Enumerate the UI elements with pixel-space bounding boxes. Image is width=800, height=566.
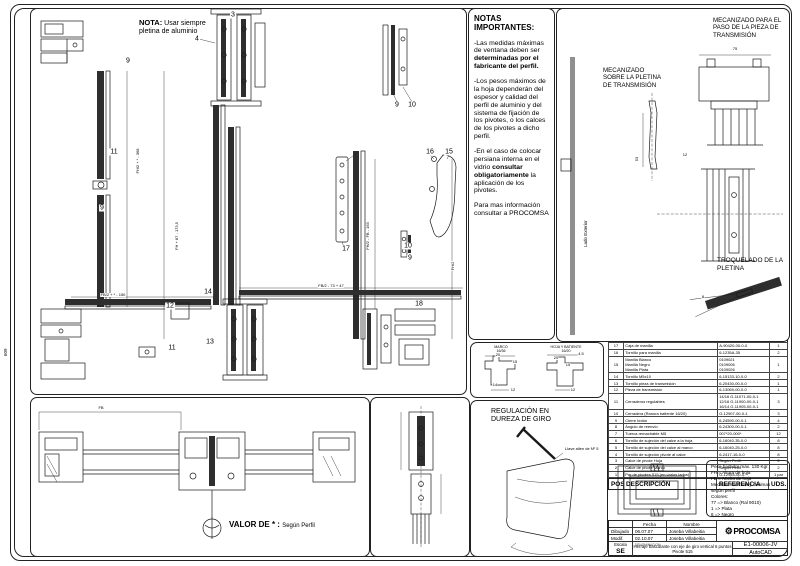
software-label: AutoCAD [733, 549, 788, 556]
parts-table-row: 4 Tornillo de sujeción pivote al calce 6… [609, 451, 788, 458]
punched-strip [690, 271, 783, 317]
sheet-edge-label: 609 [3, 348, 8, 356]
window-schematic-icon [614, 462, 700, 518]
nombre-header: Nombre [667, 521, 717, 528]
modif-label: Modif. [609, 535, 633, 542]
vertical-detail-drawing [371, 398, 469, 556]
parts-table-row: 16 Tornillo para manilla 6-1235A-35 2 [609, 349, 788, 356]
rotation-adjustment-panel: REGULACIÓN EN DUREZA DE GIRO Llave allen… [470, 400, 608, 557]
parts-table-row: 6 Tornillo de sujeción del calce a la ho… [609, 437, 788, 444]
parts-table-row: 12 Pieza de transmisión 6-13069-00-0-0 1 [609, 386, 788, 393]
parts-table-row: 10 Cerradera (Ranura batiente 16/20) G-1… [609, 410, 788, 417]
fecha-header: Fecha [633, 521, 667, 528]
brand-name: PROCOMSA [733, 526, 780, 536]
top-right-hardware [383, 25, 412, 102]
notes-paragraph-3: -En el caso de colocar persiana interna … [474, 148, 549, 195]
modif-nombre: Joseba Villabeitia [667, 535, 717, 542]
corner-assembly-bottom-left [41, 309, 155, 379]
notes-paragraph-2: -Los pesos máximos de la hoja dependerán… [474, 78, 549, 141]
drawing-subtitle: Pivote 515 [672, 549, 692, 554]
escala-value: SE [616, 548, 625, 556]
procomsa-logo: ⚙ PROCOMSA [725, 526, 781, 536]
main-note-title: NOTA: [139, 18, 162, 27]
dibujado-nombre: Joseba Villabeitia [667, 528, 717, 535]
notes-paragraph-4: Para mas información consultar a PROCOMS… [474, 202, 549, 218]
parts-table-row: 13 Tornillo pieza de transmisión 6-20430… [609, 380, 788, 387]
parts-table-row: 8 Ángulo de reenvío 6-24300-00-0-1 2 [609, 424, 788, 431]
main-assembly-drawing [31, 9, 466, 394]
parts-table-row: 17 Caja de manilla A-90420-00-0-0 1 [609, 343, 788, 350]
hoja-section-label: HOJA Y BATIENTE 16/20 [535, 345, 597, 354]
allen-key-label: Llave allen de Nº 5 [565, 447, 605, 452]
machining-panel: MECANIZADO PARA EL PASO DE LA PIEZA DE T… [556, 8, 790, 342]
dibujado-fecha: 06.07.07 [633, 528, 667, 535]
parts-table-row: 7 Tuerca remachable M5 007*20-000* 12 [609, 430, 788, 437]
notes-paragraph-1: -Las medidas máximas de ventana deben se… [474, 40, 549, 72]
modif-fecha: 02.10.07 [633, 535, 667, 542]
vertical-detail-panel [370, 397, 470, 557]
parts-table-row: 9 Cierre botón 6-24590-00-0-1 4 [609, 417, 788, 424]
parts-table-row: 5 Tornillo de sujeción del calce al marc… [609, 444, 788, 451]
marco-section [485, 356, 515, 390]
parts-table-row: 11 Cerraderos regulables 14/16 G-11071-0… [609, 393, 788, 410]
valor-label: VALOR DE * : Según Perfil [229, 520, 315, 529]
main-assembly-panel: NOTA: Usar siempre pletina de aluminio 9… [30, 8, 467, 395]
center-pivot-assembly [179, 432, 245, 490]
adjustment-title: REGULACIÓN EN DUREZA DE GIRO [491, 408, 551, 425]
parts-table-row: 14 Tornillo M5x10 6-15133-10-0-0 2 [609, 373, 788, 380]
lock-pieces [401, 231, 411, 257]
denominacion-label: DENOMINACION [635, 543, 660, 547]
machining-drawing [557, 9, 789, 341]
left-frame-block [39, 432, 83, 482]
horizontal-section-panel: FB VALOR DE * : Según Perfil [30, 397, 370, 557]
drawing-sheet: 609 [0, 0, 800, 566]
document-reference: E1-00006-JV [733, 542, 788, 549]
horizontal-section-drawing [31, 398, 369, 556]
hoja-section [547, 355, 583, 390]
important-notes-panel: NOTAS IMPORTANTES: -Las medidas máximas … [468, 8, 555, 340]
handle-sketch [507, 459, 574, 539]
gear-icon: ⚙ [725, 527, 733, 536]
drawing-title-cell: DENOMINACION Herraje basculante con eje … [633, 542, 733, 556]
fb-dimension: FB [98, 406, 104, 410]
transmission-detail [657, 169, 783, 261]
bottom-center-hardware [223, 299, 267, 380]
parts-table-body: 17 Caja de manilla A-90420-00-0-0 1 16 T… [609, 343, 788, 478]
notes-title: NOTAS IMPORTANTES: [474, 15, 549, 33]
marco-section-label: MARCO 16/36 [477, 345, 525, 354]
profile-section [699, 55, 771, 145]
groove-sections-panel: MARCO 16/36 HOJA Y BATIENTE 16/20 201514… [470, 342, 604, 398]
pivot-detail [203, 490, 221, 539]
punching-title: TROQUELADO DE LA PLETINA [717, 257, 789, 272]
machining-plate-title: MECANIZADO SOBRE LA PLETINA DE TRANSMISI… [603, 67, 663, 89]
logo-cell: ⚙ PROCOMSA [717, 521, 788, 542]
dibujado-label: Dibujado [609, 528, 633, 535]
parts-table-row: 15 Manilla Blanco Manilla Negro Manilla … [609, 356, 788, 373]
main-note: NOTA: Usar siempre pletina de aluminio [139, 19, 227, 36]
machining-pass-title: MECANIZADO PARA EL PASO DE LA PIEZA DE T… [713, 17, 787, 39]
exterior-side-label: Lado Exterior [583, 220, 588, 247]
title-block: Fecha Nombre Dibujado 06.07.07 Joseba Vi… [608, 520, 788, 556]
bottom-right-hardware [363, 309, 435, 369]
corner-assembly-top-left [41, 21, 83, 63]
specs-note-box: Peso bastidor máx. 130 Kgr. FH = Altura … [706, 460, 790, 517]
right-frame-block [313, 432, 355, 482]
